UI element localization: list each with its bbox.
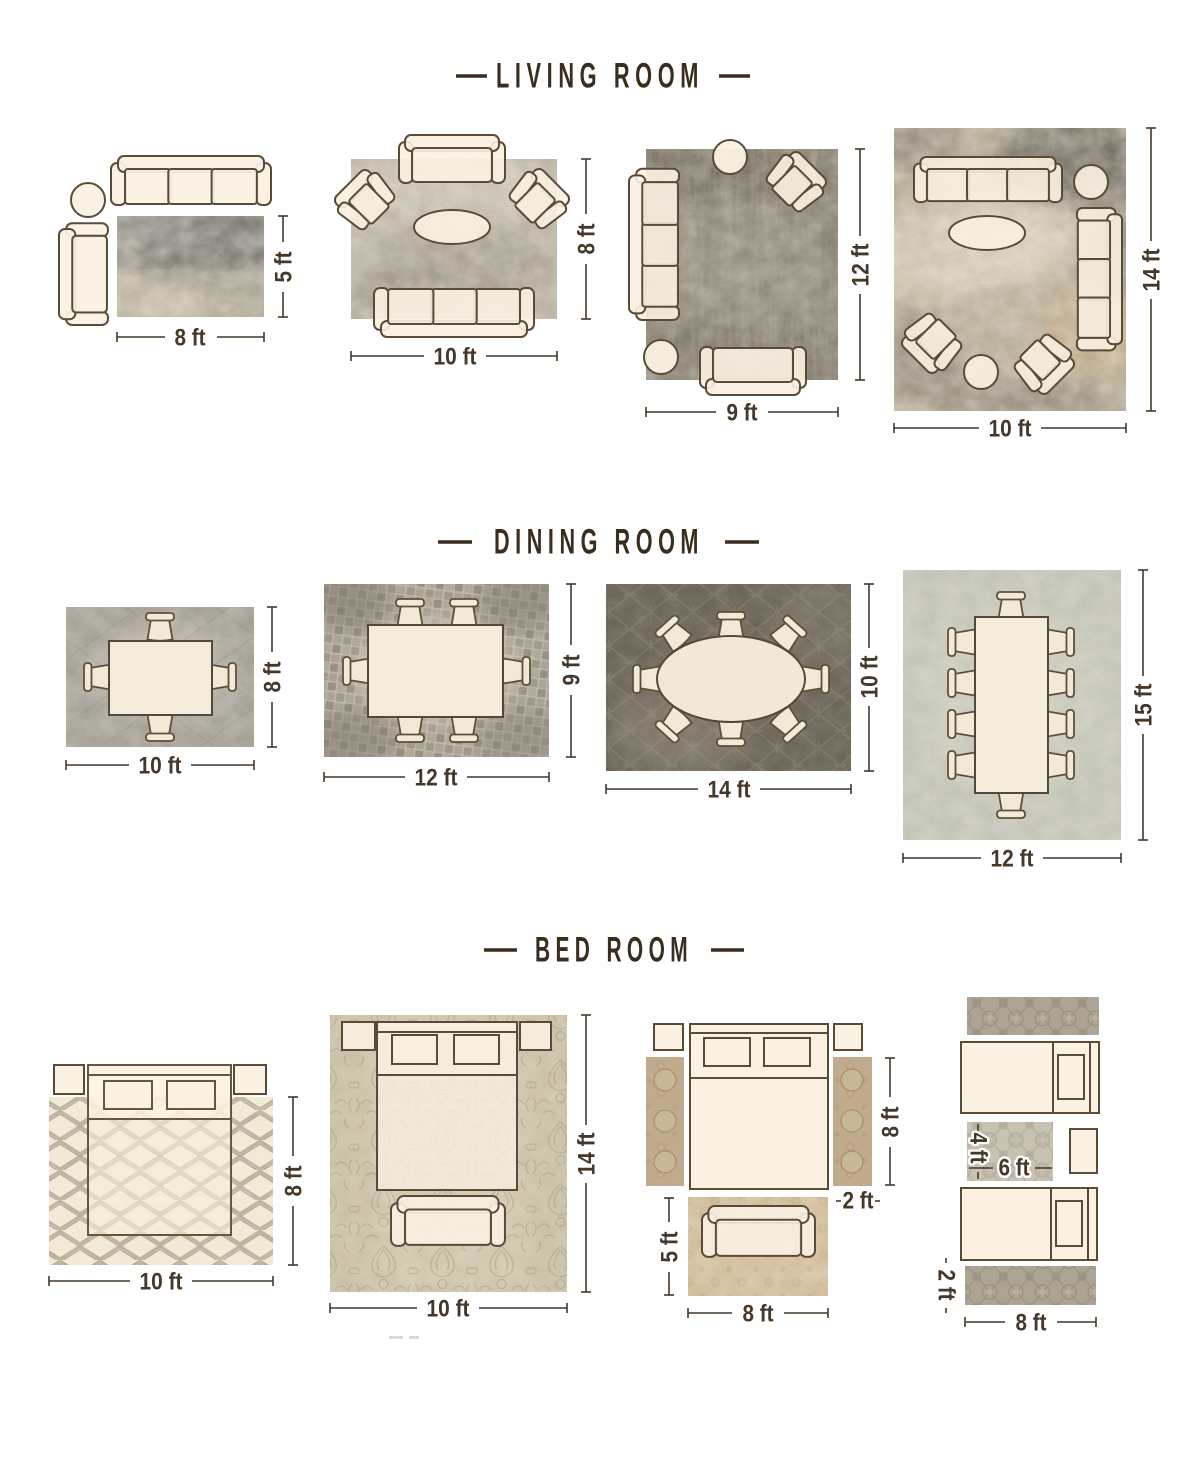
svg-text:LIVING ROOM: LIVING ROOM (496, 57, 704, 96)
svg-text:10 ft: 10 ft (989, 416, 1032, 443)
svg-text:8 ft: 8 ft (574, 223, 601, 254)
svg-text:12 ft: 12 ft (415, 765, 458, 792)
svg-text:2 ft: 2 ft (933, 1270, 960, 1301)
svg-text:8 ft: 8 ft (175, 325, 206, 352)
svg-text:14 ft: 14 ft (1139, 249, 1166, 292)
svg-text:8 ft: 8 ft (878, 1106, 905, 1137)
svg-text:10 ft: 10 ft (139, 753, 182, 780)
svg-text:8 ft: 8 ft (281, 1165, 308, 1196)
svg-text:14 ft: 14 ft (574, 1133, 601, 1176)
svg-text:6 ft: 6 ft (999, 1155, 1030, 1182)
svg-text:10 ft: 10 ft (140, 1269, 183, 1296)
svg-text:8 ft: 8 ft (743, 1301, 774, 1328)
svg-text:10 ft: 10 ft (434, 344, 477, 371)
svg-text:4 ft: 4 ft (965, 1133, 992, 1164)
svg-text:DINING ROOM: DINING ROOM (494, 523, 704, 562)
svg-text:BED ROOM: BED ROOM (535, 931, 693, 970)
svg-text:9 ft: 9 ft (727, 400, 758, 427)
svg-text:5 ft: 5 ft (657, 1231, 684, 1262)
svg-text:9 ft: 9 ft (559, 654, 586, 685)
svg-text:10 ft: 10 ft (857, 656, 884, 699)
svg-text:8 ft: 8 ft (1016, 1310, 1047, 1337)
svg-text:12 ft: 12 ft (991, 846, 1034, 873)
svg-text:10 ft: 10 ft (427, 1296, 470, 1323)
svg-text:12 ft: 12 ft (848, 244, 875, 287)
svg-text:15 ft: 15 ft (1131, 684, 1158, 727)
svg-text:14 ft: 14 ft (708, 777, 751, 804)
svg-text:5 ft: 5 ft (271, 251, 298, 282)
svg-text:8 ft: 8 ft (260, 661, 287, 692)
svg-text:2 ft: 2 ft (843, 1188, 874, 1215)
